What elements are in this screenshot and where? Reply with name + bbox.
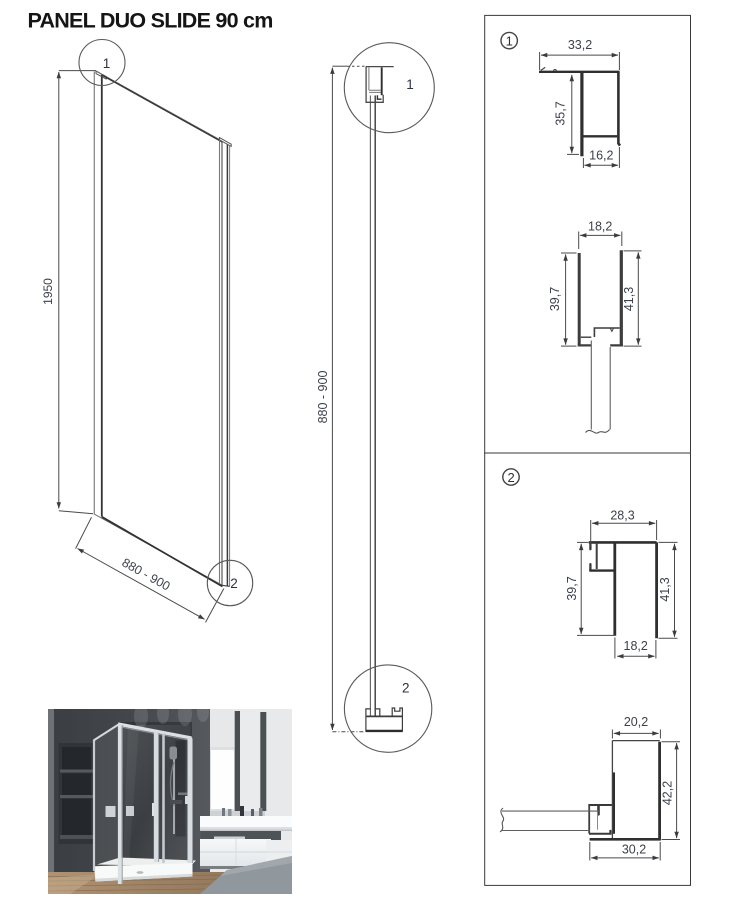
- svg-text:1950: 1950: [41, 278, 55, 305]
- svg-text:41,3: 41,3: [622, 287, 636, 311]
- svg-text:1: 1: [103, 56, 111, 71]
- svg-text:880 - 900: 880 - 900: [120, 556, 173, 594]
- svg-text:18,2: 18,2: [624, 639, 648, 653]
- svg-text:20,2: 20,2: [624, 715, 648, 729]
- svg-text:1: 1: [506, 34, 513, 49]
- svg-text:16,2: 16,2: [589, 148, 613, 162]
- svg-text:2: 2: [507, 470, 514, 485]
- svg-text:39,7: 39,7: [565, 576, 579, 600]
- svg-text:18,2: 18,2: [588, 219, 612, 233]
- svg-text:1: 1: [406, 77, 414, 92]
- svg-text:39,7: 39,7: [548, 287, 562, 311]
- svg-text:33,2: 33,2: [568, 38, 592, 52]
- svg-text:28,3: 28,3: [610, 508, 634, 522]
- svg-text:2: 2: [230, 576, 238, 591]
- svg-text:880 - 900: 880 - 900: [316, 371, 330, 424]
- svg-text:30,2: 30,2: [622, 843, 646, 857]
- svg-text:PANEL DUO SLIDE 90 cm: PANEL DUO SLIDE 90 cm: [28, 8, 273, 32]
- svg-text:35,7: 35,7: [554, 101, 568, 125]
- svg-text:41,3: 41,3: [658, 577, 672, 601]
- svg-text:42,2: 42,2: [661, 781, 675, 805]
- svg-text:2: 2: [402, 681, 410, 696]
